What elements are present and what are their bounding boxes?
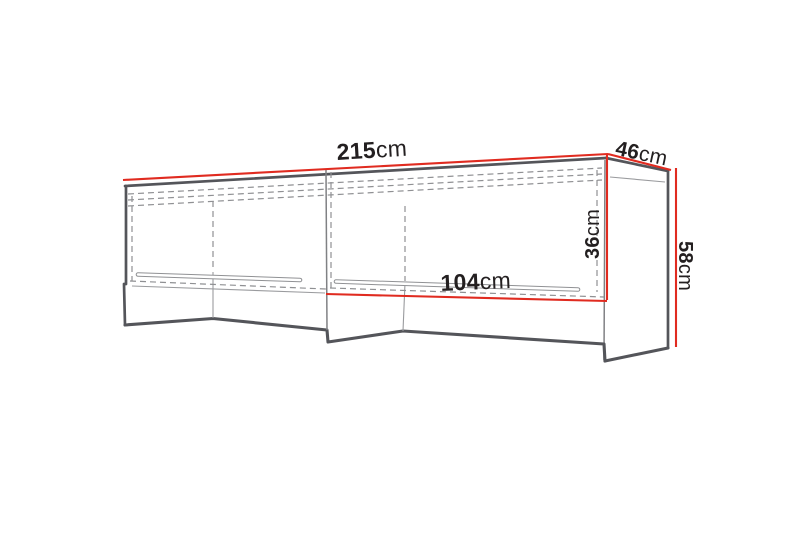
inner-width-unit: cm	[479, 267, 511, 294]
right-panel-bottom-edge	[605, 348, 668, 361]
left-shelf-hidden-line	[130, 281, 326, 289]
dimension-diagram-canvas: 215cm 46cm 36cm 58cm 104cm	[0, 0, 800, 533]
front-right-edge	[604, 160, 605, 360]
height-unit: cm	[674, 264, 696, 291]
door-grooves	[138, 275, 578, 290]
top-hidden-line-2	[128, 174, 602, 200]
side-face-top-line	[610, 177, 665, 182]
height-dimension-label: 58cm	[675, 241, 695, 291]
width-dimension-label: 215cm	[336, 137, 408, 164]
left-edge	[124, 186, 126, 325]
inner-width-dimension-label: 104cm	[440, 269, 511, 295]
height-value: 58	[674, 241, 696, 264]
inner-height-value: 36	[582, 236, 604, 259]
top-hidden-line-3	[128, 180, 602, 206]
inner-height-unit: cm	[582, 209, 604, 236]
left-opening-bottom-edge	[132, 286, 325, 293]
inner-width-dimension-line	[326, 294, 607, 301]
width-unit: cm	[375, 135, 408, 163]
cabinet-outline	[124, 158, 668, 361]
inner-width-value: 104	[440, 268, 480, 296]
width-value: 215	[336, 137, 377, 165]
center-partition-edge	[326, 170, 327, 330]
inner-height-dimension-label: 36cm	[583, 209, 603, 259]
bottom-outline	[125, 319, 605, 362]
